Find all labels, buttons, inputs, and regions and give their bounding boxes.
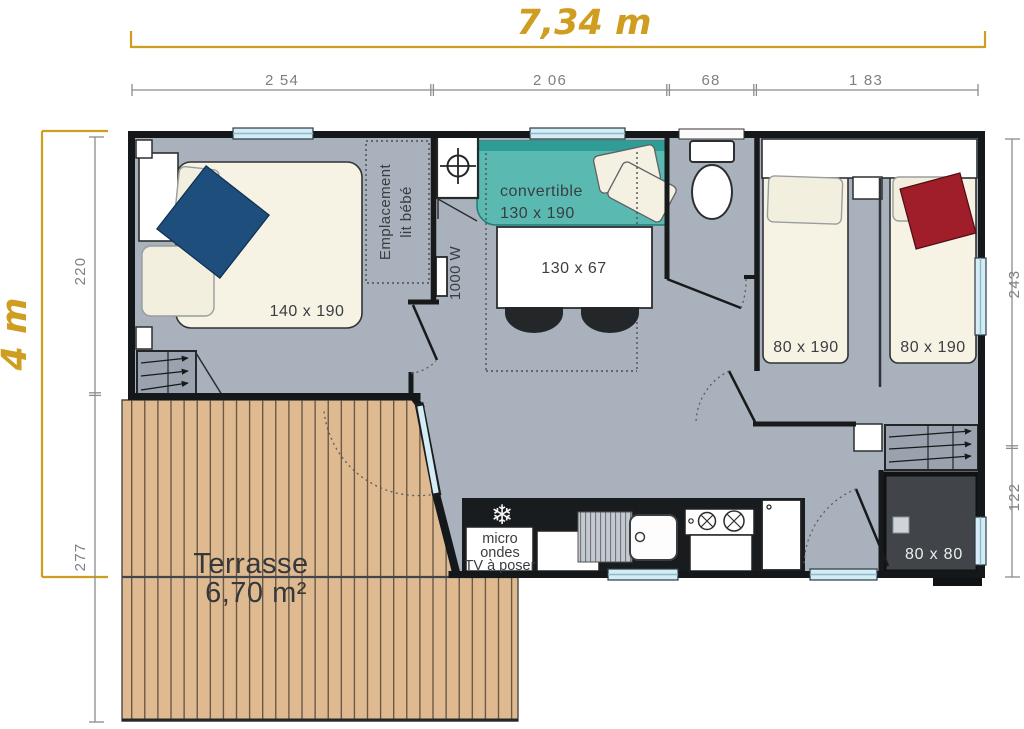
hob-cabinet xyxy=(690,535,752,571)
shower-drain-icon xyxy=(893,517,909,533)
overall-width-label: 7,34 m xyxy=(516,3,651,43)
sofa-label: 130 x 190 xyxy=(500,205,575,222)
window-icon xyxy=(233,128,313,139)
window-icon xyxy=(975,517,986,565)
dim-label: 277 xyxy=(72,543,89,572)
single-bed-label: 80 x 190 xyxy=(900,339,965,356)
hob-icon xyxy=(685,509,754,535)
baby-zone-label: lit bébé xyxy=(398,186,415,238)
dim-label: 1 83 xyxy=(849,72,883,89)
dim-label: 122 xyxy=(1006,483,1023,512)
heater-1000w xyxy=(436,257,447,296)
floor-plan: 7,34 m 4 m 2 54 2 06 68 1 83 220 277 243… xyxy=(0,0,1024,729)
snowflake-icon: ❄ xyxy=(491,500,514,531)
dim-label: 243 xyxy=(1006,270,1023,299)
sink-drainer xyxy=(578,512,632,562)
wc-entry-door xyxy=(679,129,744,139)
table-label: 130 x 67 xyxy=(541,260,606,277)
sink-basin xyxy=(630,515,677,560)
wall-light xyxy=(136,140,152,158)
wardrobe-icon xyxy=(885,425,978,470)
wall-light xyxy=(136,327,152,349)
entry-step xyxy=(933,578,982,586)
master-bed-label: 140 x 190 xyxy=(270,303,345,320)
window-icon xyxy=(810,569,877,580)
kitchen-label: TV à poser xyxy=(465,558,536,574)
wc-room xyxy=(690,141,734,219)
single-bed-label: 80 x 190 xyxy=(773,339,838,356)
terrace-name: Terrasse xyxy=(193,548,308,580)
window-icon xyxy=(608,569,678,580)
floor-plan-canvas: 7,34 m 4 m 2 54 2 06 68 1 83 220 277 243… xyxy=(0,0,1024,729)
toilet-icon xyxy=(690,141,734,219)
terrace-area: 6,70 m² xyxy=(205,577,307,609)
dim-label: 2 06 xyxy=(533,72,567,89)
dim-label: 2 54 xyxy=(265,72,299,89)
shower-label: 80 x 80 xyxy=(905,546,963,563)
fridge-icon xyxy=(762,500,801,570)
baby-zone-label: Emplacement xyxy=(377,164,394,261)
bathroom-cabinet xyxy=(854,424,882,451)
pillow xyxy=(767,176,843,225)
heater-label: 1000 W xyxy=(447,246,464,301)
window-icon xyxy=(530,128,625,139)
sofa-label: convertible xyxy=(500,183,583,200)
dim-label: 68 xyxy=(701,72,720,89)
window-icon xyxy=(975,258,986,335)
headboard-shelf xyxy=(762,139,977,178)
overall-height-label: 4 m xyxy=(0,297,35,371)
dim-label: 220 xyxy=(72,257,89,286)
nightstand xyxy=(853,177,882,199)
